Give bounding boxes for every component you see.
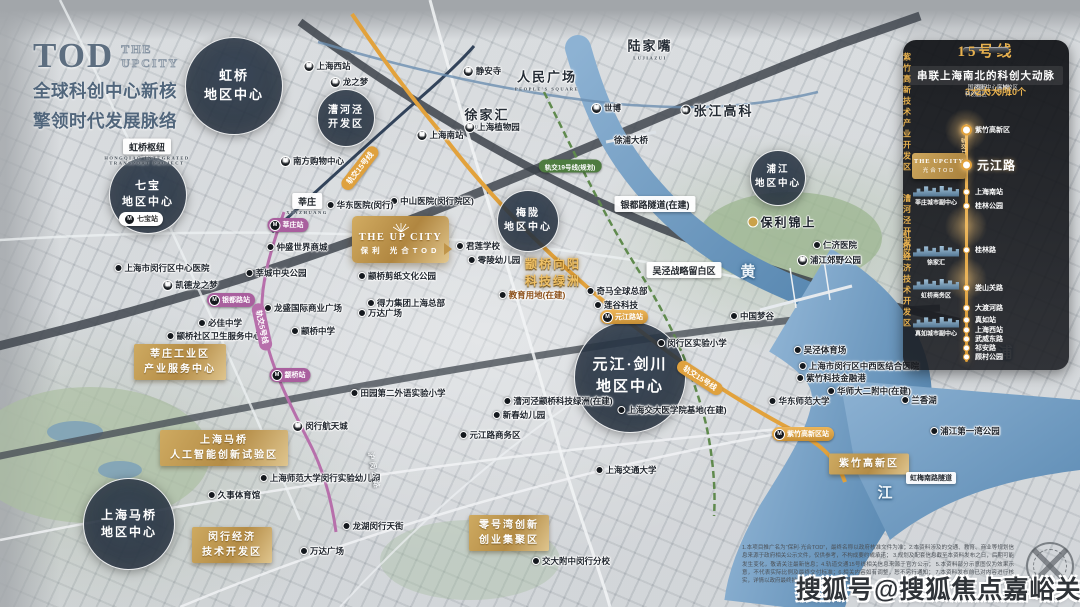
city-skyline-icon: [913, 246, 959, 257]
station-dot: [963, 336, 970, 343]
station-dot: [963, 247, 970, 254]
district-side-label: 真如城市副中心: [909, 317, 963, 338]
title-block: TOD THE UPCITY 全球科创中心新核 擎领时代发展脉络: [33, 38, 179, 133]
district-side-label: 莘庄城市副中心: [909, 186, 963, 207]
river-name-char: 江: [877, 482, 894, 503]
poi-dot-icon: [260, 474, 268, 482]
metro-poi-label: M七宝站: [119, 212, 163, 226]
map-label: 华东师范大学: [768, 395, 829, 407]
station-dot: [963, 317, 970, 324]
poi-dot-icon: [342, 522, 350, 530]
map-label: 仲盛世界商城: [266, 241, 327, 253]
map-label: 华东医院(闵行): [327, 199, 394, 211]
metro-poi-label: M上海植物园: [464, 121, 520, 133]
region-circle: 梅陇地区中心: [497, 190, 559, 252]
station-name: 顾村公园: [975, 352, 1003, 362]
poi-dot-icon: [198, 319, 206, 327]
area-label: 莘庄工业区产业服务中心: [134, 344, 226, 380]
station-name: 娄山关路: [975, 283, 1003, 293]
map-label: 人民广场PEOPLE'S SQUARE: [515, 67, 579, 92]
poi-dot-icon: [594, 301, 602, 309]
poi-dot-icon: [291, 327, 299, 335]
poi-dot-icon: [796, 374, 804, 382]
project-name-cn: 保利 光合TOD: [361, 245, 441, 256]
poi-dot-icon: [657, 339, 665, 347]
poi-dot-icon: [930, 427, 938, 435]
poi-dot-icon: [114, 264, 122, 272]
station-dot: [961, 125, 972, 136]
metro-icon: M: [124, 214, 135, 225]
metro-poi-label: M静安寺: [463, 65, 502, 77]
line15-info-panel: 15号线 串联上海南北的科创大动脉 3大国家级 科创园区2大枢纽3大中心区域9所…: [903, 40, 1069, 370]
map-label: 轨交19号线(规划): [539, 160, 602, 173]
metro-poi-label: M闵行航天城: [292, 420, 348, 432]
poi-dot-icon: [813, 241, 821, 249]
metro-icon: M: [464, 122, 475, 133]
poi-dot-icon: [350, 389, 358, 397]
line15-headline: 串联上海南北的科创大动脉: [909, 66, 1063, 85]
poi-dot-icon: [266, 243, 274, 251]
project-name-en: THE UP CITY: [359, 232, 443, 243]
station-dot: [963, 305, 970, 312]
metro-poi-label: M张江高科: [680, 101, 753, 120]
region-circle: 上海马桥地区中心: [83, 478, 175, 570]
station-name: 元江路: [977, 157, 1016, 174]
station-dot: [961, 160, 972, 171]
region-circle: 浦江地区中心: [750, 150, 806, 206]
poi-dot-icon: [794, 346, 802, 354]
poi-dot-icon: [459, 431, 467, 439]
station-dot: [963, 327, 970, 334]
train-icon: [989, 47, 1009, 53]
metro-icon: M: [774, 429, 785, 440]
city-skyline-icon: [913, 317, 959, 328]
metro-icon: M: [272, 370, 283, 381]
map-label: 颛桥社区卫生服务中心: [166, 330, 261, 342]
map-label: 莘庄XINZHUANG: [286, 193, 328, 215]
station-name: 大渡河路: [975, 303, 1003, 313]
line15-title: 15号线: [903, 47, 1069, 53]
map-label: 新春幼儿园: [493, 409, 546, 421]
metro-poi-label: M莘庄站: [268, 218, 309, 232]
map-label: 吴泾战略留白区: [646, 262, 721, 278]
map-label: 上海师范大学闵行实验幼儿园: [260, 472, 381, 484]
district-side-label: 虹桥商务区: [909, 279, 963, 300]
poi-dot-icon: [327, 201, 335, 209]
area-label: 上海马桥人工智能创新试验区: [160, 430, 288, 466]
poi-dot-icon: [768, 397, 776, 405]
map-label: 交大附中闵行分校: [532, 555, 610, 567]
project-box: THE UP CITY 保利 光合TOD: [352, 216, 449, 263]
metro-poi-label: M浦江郊野公园: [797, 254, 861, 266]
metro-poi-label: M上海西站: [303, 60, 350, 72]
poi-dot-icon: [166, 332, 174, 340]
map-label: 中山医院(闵行院区): [390, 195, 474, 207]
map-label: 万达广场: [358, 307, 402, 319]
map-label: 必佳中学: [198, 317, 242, 329]
map-label: 零陵幼儿园: [468, 254, 521, 266]
map-label: 紫竹科技金融港: [796, 372, 866, 384]
location-pin-icon: [747, 217, 758, 228]
map-label: 兰香湖: [901, 394, 937, 406]
map-label: 中国梦谷: [730, 310, 774, 322]
city-skyline-icon: [913, 186, 959, 197]
poi-dot-icon: [367, 299, 375, 307]
metro-icon: M: [602, 312, 613, 323]
metro-icon: M: [797, 255, 808, 266]
map-label: 教育用地(在建): [499, 289, 566, 301]
metro-icon: M: [292, 421, 303, 432]
metro-icon: M: [680, 105, 691, 116]
metro-poi-label: M银都路站: [207, 293, 255, 307]
city-skyline-icon: [913, 279, 959, 290]
map-label: 龙盛国际商业广场: [264, 302, 342, 314]
lake: [98, 461, 142, 479]
poi-dot-icon: [827, 387, 835, 395]
tod-promo-map: TOD THE UPCITY 全球科创中心新核 擎领时代发展脉络 THE UP …: [0, 0, 1080, 607]
map-label: 颛桥中学: [291, 325, 335, 337]
map-label: 浦江第一湾公园: [930, 425, 1000, 437]
metro-icon: M: [270, 220, 281, 231]
map-label: 闵行区实验小学: [657, 337, 727, 349]
map-label: 华师大二附中(在建): [827, 385, 911, 397]
metro-icon: M: [303, 61, 314, 72]
metro-poi-label: M上海南站: [416, 129, 463, 141]
river-name-char: 黄: [740, 261, 757, 282]
district-side-label: 徐家汇: [909, 246, 963, 267]
area-label: 闵行经济技术开发区: [192, 527, 272, 563]
map-label: 徐浦大桥: [614, 134, 648, 146]
poi-dot-icon: [799, 362, 807, 370]
region-circle: 虹桥地区中心: [185, 37, 283, 135]
poi-dot-icon: [499, 291, 507, 299]
station-name: 桂林公园: [975, 201, 1003, 211]
map-label: 颛桥剪纸文化公园: [358, 270, 436, 282]
area-label: 颛桥向阳科技绿洲: [525, 256, 581, 290]
map-label: 田园第二外语实验小学: [350, 387, 445, 399]
map-label: 上海交大医学院基地(在建): [617, 404, 726, 416]
map-label: 久事体育馆: [208, 489, 261, 501]
poi-dot-icon: [468, 256, 476, 264]
metro-icon: M: [280, 156, 291, 167]
logo-tod: TOD: [33, 38, 114, 73]
area-label: 零号湾创新创业集聚区: [469, 515, 549, 551]
map-label: 虹梅南路隧道: [906, 472, 956, 484]
station-name: 真如站: [975, 315, 996, 325]
map-label: 上海交通大学: [595, 464, 656, 476]
station-dot: [963, 203, 970, 210]
station-name: 上海南站: [975, 187, 1003, 197]
metro-icon: M: [209, 295, 220, 306]
map-label: 银都路隧道(在建): [615, 196, 696, 212]
station-name: 桂林路: [975, 245, 996, 255]
poi-dot-icon: [300, 547, 308, 555]
map-label: 君莲学校: [456, 240, 500, 252]
map-label: 莘城中央公园: [245, 267, 306, 279]
poi-dot-icon: [532, 557, 540, 565]
poi-dot-icon: [358, 309, 366, 317]
metro-icon: M: [463, 66, 474, 77]
headline-line2: 擎领时代发展脉络: [33, 108, 179, 133]
station-dot: [963, 354, 970, 361]
map-label: 吴泾体育场: [794, 344, 847, 356]
metro-poi-label: M龙之梦: [330, 76, 369, 88]
poi-dot-icon: [493, 411, 501, 419]
metro-icon: M: [330, 77, 341, 88]
metro-poi-label: M颛桥站: [270, 368, 311, 382]
map-label: 陆家嘴LUJIAZUI: [627, 36, 672, 61]
region-circle: 漕河泾开发区: [317, 89, 375, 147]
project-callout: THE UPCITY 光合TOD: [912, 153, 966, 179]
watermark: 搜狐号@搜狐焦点嘉峪关站: [796, 570, 1080, 606]
map-label: 奇马全球总部: [586, 285, 647, 297]
sunburst-icon: [393, 223, 409, 232]
area-label: 紫竹高新区: [829, 454, 909, 475]
metro-poi-label: M南方购物中心: [280, 155, 344, 167]
logo-the-upcity: THE UPCITY: [121, 43, 179, 71]
map-label: 漕河泾颛桥科技绿洲(在建): [503, 395, 612, 407]
map-label: 仁济医院: [813, 239, 857, 251]
poi-dot-icon: [595, 466, 603, 474]
map-label: 上海市闵行区中心医院: [114, 262, 209, 274]
metro-icon: M: [162, 280, 173, 291]
map-label: 虹桥枢纽HONGQIAO INTEGRATED TRANSPORT PROJEC…: [92, 139, 202, 166]
poi-dot-icon: [358, 272, 366, 280]
metro-icon: M: [591, 103, 602, 114]
metro-poi-label: M元江路站: [600, 310, 648, 324]
station-dot: [963, 285, 970, 292]
poi-dot-icon: [586, 287, 594, 295]
headline-line1: 全球科创中心新核: [33, 78, 179, 103]
map-label: 万达广场: [300, 545, 344, 557]
metro-icon: M: [416, 130, 427, 141]
metro-poi-label: M紫竹高新区站: [772, 427, 834, 441]
station-dot: [963, 189, 970, 196]
poi-dot-icon: [456, 242, 464, 250]
map-label: 元江路商务区: [459, 429, 520, 441]
metro-poi-label: M世博: [591, 102, 621, 114]
poi-dot-icon: [245, 269, 253, 277]
map-label: 上海市闵行区中西医结合医院: [799, 360, 920, 372]
poi-dot-icon: [503, 397, 511, 405]
station-name: 紫竹高新区: [975, 125, 1010, 135]
poi-dot-icon: [730, 312, 738, 320]
poi-dot-icon: [617, 406, 625, 414]
poi-dot-icon: [901, 396, 909, 404]
poi-dot-icon: [208, 491, 216, 499]
map-label: 龙湖闵行天街: [342, 520, 403, 532]
metro-poi-label: M凯德龙之梦: [162, 279, 218, 291]
station-dot: [963, 345, 970, 352]
map-label: 保利锦上: [747, 214, 816, 231]
